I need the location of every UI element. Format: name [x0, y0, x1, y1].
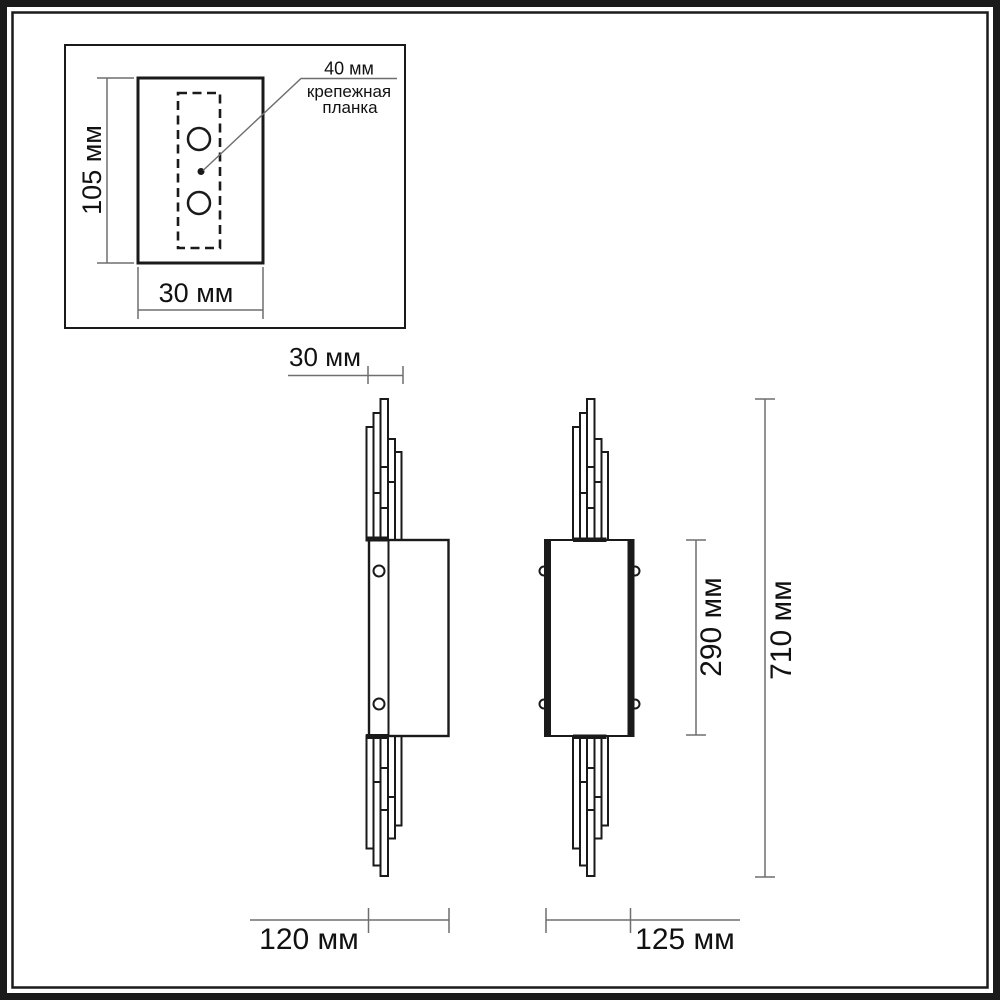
detail-box: 40 мм крепежная планка 105 мм 30 мм [65, 45, 405, 328]
mounting-screw-bottom [374, 699, 385, 710]
dim-total-height-label: 710 мм [765, 580, 798, 680]
body-side-rail-right [628, 539, 635, 737]
callout-text-line2: планка [322, 98, 378, 117]
dim-depth: 30 мм [288, 342, 403, 384]
dim-total-height: 710 мм [755, 399, 798, 877]
lamp-side-view: 30 мм 120 мм [250, 342, 449, 956]
dim-body-height: 290 мм [686, 540, 728, 735]
dim-side-width: 120 мм [250, 908, 449, 956]
callout-anchor-dot [198, 168, 205, 175]
slat-body-junction [366, 537, 389, 542]
dim-plate-height-label: 105 мм [77, 125, 107, 215]
dim-front-width: 125 мм [546, 908, 740, 956]
slat-body-junction [366, 734, 389, 739]
dim-plate-width-label: 30 мм [159, 278, 234, 308]
drawing-canvas: 40 мм крепежная планка 105 мм 30 мм [0, 0, 1000, 1000]
front-view-body [545, 540, 634, 736]
mounting-screw-top [374, 566, 385, 577]
dim-plate-height: 105 мм [77, 78, 134, 263]
technical-drawing: 40 мм крепежная планка 105 мм 30 мм [0, 0, 1000, 1000]
slat-body-junction [573, 735, 607, 740]
dim-depth-label: 30 мм [289, 342, 361, 372]
callout-value-label: 40 мм [324, 59, 374, 79]
dim-plate-width: 30 мм [138, 267, 263, 319]
dim-front-width-label: 125 мм [635, 923, 735, 956]
lamp-front-view: 125 мм 290 мм 710 мм [540, 399, 799, 956]
dim-body-height-label: 290 мм [695, 577, 728, 677]
body-side-rail-left [544, 539, 551, 737]
dim-side-width-label: 120 мм [259, 923, 359, 956]
slat-body-junction [573, 538, 607, 543]
